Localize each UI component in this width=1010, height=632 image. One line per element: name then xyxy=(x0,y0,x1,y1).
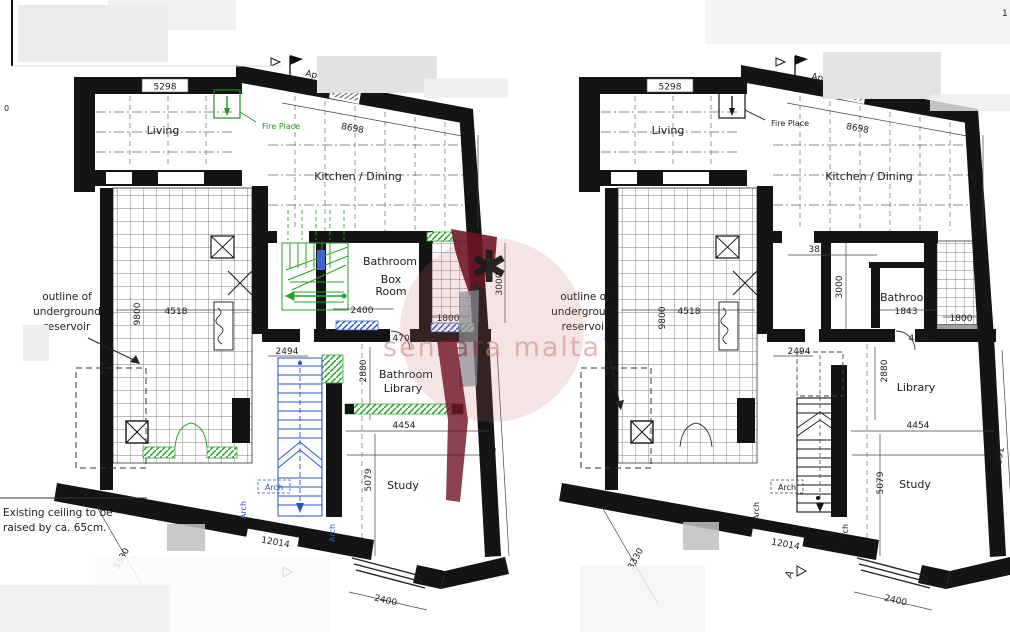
new-door xyxy=(317,250,325,270)
room-study: Study xyxy=(387,479,419,492)
dim-4518: 4518 xyxy=(165,307,188,317)
arch-text: Arch xyxy=(752,502,761,520)
dim-1800: 1800 xyxy=(950,314,973,324)
watermark-text: sensara malta xyxy=(383,332,601,363)
dim-9800: 9800 xyxy=(658,306,668,329)
section-marker: A xyxy=(783,566,806,580)
new-stair-lower xyxy=(278,358,322,516)
dim-2880: 2880 xyxy=(359,359,369,382)
fireplace-symbol xyxy=(214,90,256,122)
reservoir-line3: reservoir xyxy=(44,321,91,333)
new-wall-hatch xyxy=(207,447,237,458)
room-kitchen-dining: Kitchen / Dining xyxy=(825,170,913,183)
ceiling-line2: raised by ca. 65cm. xyxy=(3,522,106,534)
room-kitchen-dining: Kitchen / Dining xyxy=(314,170,402,183)
blur-box xyxy=(167,524,205,551)
room-living: Living xyxy=(147,124,180,137)
wall-end xyxy=(345,404,354,414)
ceiling-line1: Existing ceiling to be xyxy=(3,507,113,519)
fireplace-label: Fire Place xyxy=(771,119,809,128)
floorplan-drawing: Arch Arch Arch Fire Place Living Kitchen… xyxy=(0,0,1010,632)
dim-3623: 3623 xyxy=(468,172,478,195)
section-marker-icon xyxy=(797,566,806,576)
room-bath-library2: Library xyxy=(384,382,423,395)
fireplace-symbol xyxy=(719,90,765,120)
dim-2880: 2880 xyxy=(880,359,890,382)
new-wall-hatch xyxy=(143,447,175,458)
reservoir-line2: underground xyxy=(33,306,101,318)
new-wall-hatch xyxy=(322,355,343,383)
dim-4454: 4454 xyxy=(393,421,416,431)
dim-8698: 8698 xyxy=(340,122,365,136)
new-opening-hatch xyxy=(336,321,378,330)
dim-3623: 3623 xyxy=(969,172,979,195)
section-marker-letter: A xyxy=(783,568,797,580)
dim-2494: 2494 xyxy=(276,347,299,357)
room-bathroom: Bathroom xyxy=(363,255,417,268)
dim-4454: 4454 xyxy=(907,421,930,431)
blur-box xyxy=(930,94,1010,111)
dim-2400: 2400 xyxy=(373,594,398,609)
watermark-part1: sen xyxy=(383,332,437,363)
dim-5298: 5298 xyxy=(154,83,177,93)
corner-mark: 1 xyxy=(1002,9,1008,19)
arch-text: Arch xyxy=(265,483,283,492)
arch-text: Arch xyxy=(841,524,850,542)
fireplace-label: Fire Place xyxy=(262,122,300,131)
dim-5298: 5298 xyxy=(659,83,682,93)
room-living: Living xyxy=(652,124,685,137)
blur-box xyxy=(580,566,705,632)
watermark-part3: a malta xyxy=(484,332,601,363)
blur-box xyxy=(0,585,170,632)
dim-5079: 5079 xyxy=(364,468,374,491)
dim-2400: 2400 xyxy=(883,594,908,609)
blur-box xyxy=(18,5,168,62)
dim-5079: 5079 xyxy=(876,471,886,494)
room-bathroom: Bathroom xyxy=(880,291,934,304)
blur-box xyxy=(424,78,508,98)
dim-3000: 3000 xyxy=(835,275,845,298)
room-study: Study xyxy=(899,478,931,491)
arch-text: Arch xyxy=(239,501,248,519)
dim-3837: 3837 xyxy=(809,245,832,255)
arch-text: Arch xyxy=(328,524,337,542)
blur-box xyxy=(705,0,1010,44)
reservoir-line1: outline of xyxy=(42,291,92,303)
dim-9800: 9800 xyxy=(133,302,143,325)
dim-2494: 2494 xyxy=(788,347,811,357)
dim-4706: 4706 xyxy=(909,334,932,344)
room-library: Library xyxy=(897,381,936,394)
watermark-part2: sar xyxy=(437,332,485,363)
new-wall-hatch xyxy=(427,232,453,241)
plan-shell-right xyxy=(559,55,1010,610)
dim-2400-box: 2400 xyxy=(351,306,374,316)
arch-label: Arch xyxy=(771,480,803,493)
blur-box xyxy=(317,56,437,93)
watermark-asterisk: ✱ xyxy=(471,242,508,293)
room-box2: Room xyxy=(375,285,406,298)
new-stair-upper xyxy=(282,243,348,310)
blur-box xyxy=(823,52,941,99)
dim-4518: 4518 xyxy=(678,307,701,317)
blur-box xyxy=(683,522,719,550)
blur-box xyxy=(23,325,49,361)
edge-mark: 0 xyxy=(4,104,9,113)
dim-8698: 8698 xyxy=(845,122,870,136)
arch-text: Arch xyxy=(778,483,796,492)
dim-1843: 1843 xyxy=(895,307,918,317)
